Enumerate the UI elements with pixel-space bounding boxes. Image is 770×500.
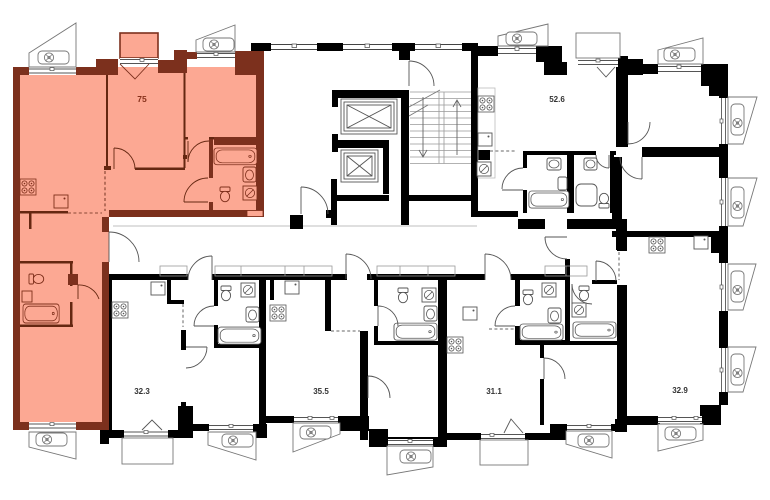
svg-text:32.9: 32.9: [672, 386, 688, 395]
svg-text:31.1: 31.1: [486, 387, 502, 396]
svg-text:32.3: 32.3: [134, 387, 150, 396]
svg-text:75: 75: [137, 94, 147, 104]
svg-text:52.6: 52.6: [549, 95, 565, 104]
svg-text:35.5: 35.5: [313, 387, 329, 396]
